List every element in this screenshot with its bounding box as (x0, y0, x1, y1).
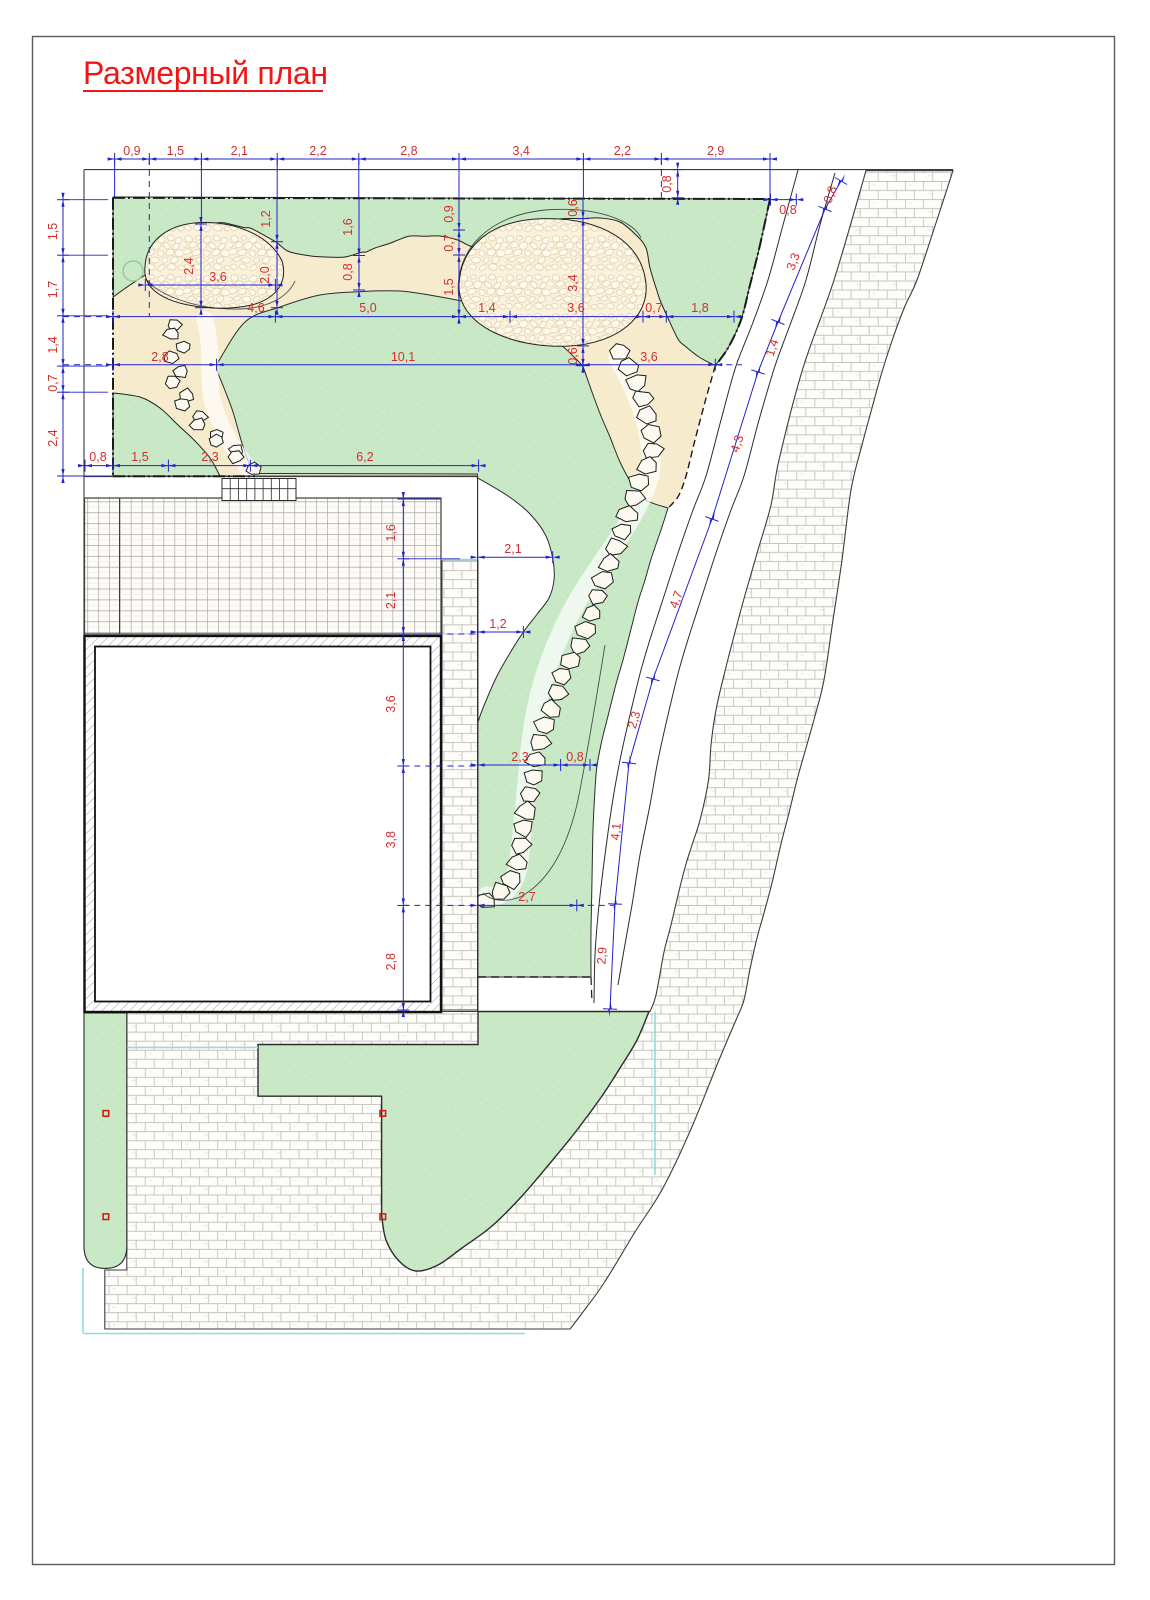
svg-text:1,5: 1,5 (442, 278, 456, 295)
svg-text:0,8: 0,8 (89, 450, 106, 464)
svg-text:2,4: 2,4 (182, 257, 196, 274)
svg-text:0,8: 0,8 (566, 750, 583, 764)
svg-text:0,7: 0,7 (46, 374, 60, 391)
svg-text:3,8: 3,8 (384, 831, 398, 848)
svg-text:0,6: 0,6 (566, 199, 580, 216)
svg-text:0,9: 0,9 (442, 205, 456, 222)
svg-text:0,8: 0,8 (341, 263, 355, 280)
svg-text:1,5: 1,5 (167, 144, 184, 158)
svg-text:1,5: 1,5 (131, 450, 148, 464)
svg-text:2,1: 2,1 (504, 542, 521, 556)
svg-text:2,8: 2,8 (384, 953, 398, 970)
svg-text:1,4: 1,4 (46, 336, 60, 353)
svg-text:1,2: 1,2 (259, 210, 273, 227)
svg-text:2,2: 2,2 (614, 144, 631, 158)
svg-text:2,9: 2,9 (594, 947, 609, 965)
svg-text:0,7: 0,7 (442, 234, 456, 251)
svg-text:Размерный план: Размерный план (83, 55, 328, 91)
svg-text:2,0: 2,0 (258, 266, 272, 283)
svg-text:2,1: 2,1 (231, 144, 248, 158)
svg-text:3,6: 3,6 (640, 350, 657, 364)
svg-text:3,6: 3,6 (209, 270, 226, 284)
svg-text:1,8: 1,8 (691, 301, 708, 315)
svg-text:2,2: 2,2 (309, 144, 326, 158)
svg-text:0,9: 0,9 (123, 144, 140, 158)
svg-text:2,9: 2,9 (707, 144, 724, 158)
svg-text:10,1: 10,1 (391, 350, 415, 364)
svg-text:1,7: 1,7 (46, 281, 60, 298)
svg-text:3,6: 3,6 (567, 301, 584, 315)
svg-text:0,7: 0,7 (645, 301, 662, 315)
svg-text:1,5: 1,5 (46, 223, 60, 240)
svg-text:1,6: 1,6 (341, 218, 355, 235)
svg-text:6,2: 6,2 (356, 450, 373, 464)
svg-text:2,8: 2,8 (400, 144, 417, 158)
svg-text:1,6: 1,6 (384, 524, 398, 541)
svg-text:2,4: 2,4 (46, 429, 60, 446)
svg-text:2,7: 2,7 (518, 890, 535, 904)
svg-text:4,6: 4,6 (247, 301, 264, 315)
svg-text:0,8: 0,8 (779, 203, 796, 217)
svg-text:2,1: 2,1 (384, 592, 398, 609)
svg-text:1,2: 1,2 (489, 617, 506, 631)
svg-text:0,6: 0,6 (566, 347, 580, 364)
svg-text:2,8: 2,8 (151, 350, 168, 364)
svg-text:3,4: 3,4 (513, 144, 530, 158)
svg-text:2,3: 2,3 (201, 450, 218, 464)
svg-text:3,4: 3,4 (566, 274, 580, 291)
svg-text:2,3: 2,3 (511, 750, 528, 764)
svg-text:1,4: 1,4 (478, 301, 495, 315)
svg-text:3,6: 3,6 (384, 695, 398, 712)
svg-text:0,8: 0,8 (660, 175, 674, 192)
svg-text:5,0: 5,0 (359, 301, 376, 315)
svg-text:4,1: 4,1 (608, 822, 624, 841)
